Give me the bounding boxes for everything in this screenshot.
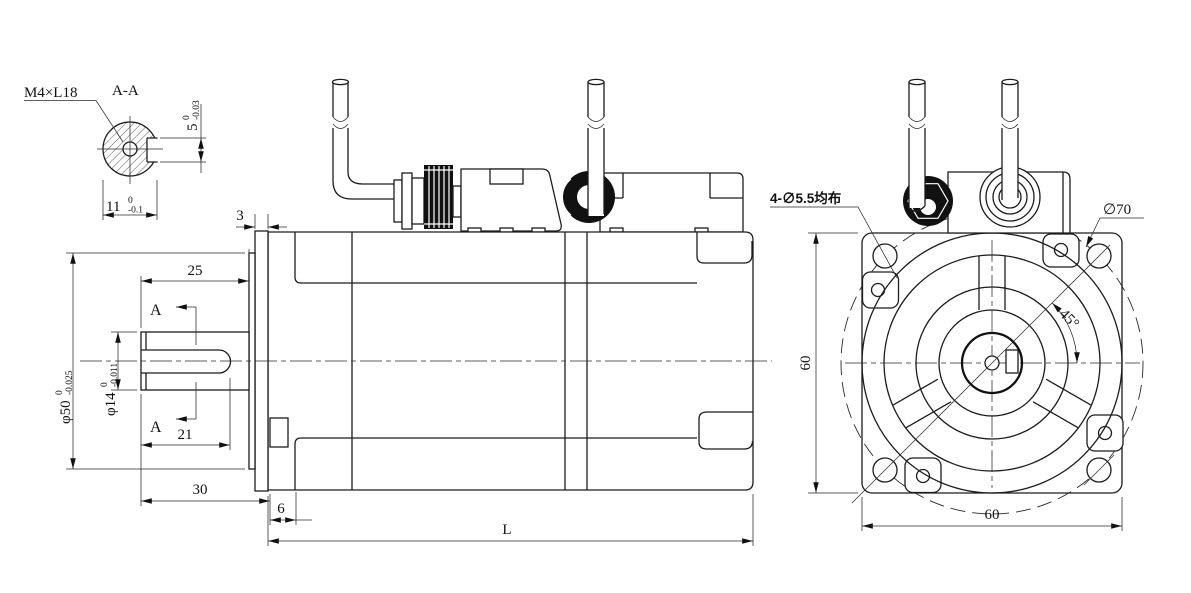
front-right-cable [1002, 79, 1018, 200]
svg-text:-0.1: -0.1 [128, 206, 143, 216]
side-view: 3 25 A A 21 30 6 [55, 79, 772, 546]
shaft-dia-dim: φ14 0 -0.011 [100, 363, 120, 416]
keyway-length-dim: 21 [178, 427, 193, 443]
thread-callout-label: M4×L18 [24, 85, 77, 101]
front-left-cable [909, 79, 925, 211]
front-view: 45° 4-∅ [770, 79, 1144, 531]
svg-text:0: 0 [182, 115, 192, 120]
section-detail-view: M4×L18 A-A 5 0 -0.03 11 0 -0.1 [24, 83, 206, 220]
motor-drawing: M4×L18 A-A 5 0 -0.03 11 0 -0.1 [0, 0, 1191, 593]
body-length-dim: L [502, 522, 511, 538]
svg-text:-0.025: -0.025 [65, 370, 75, 395]
shaft-length-dim: 25 [188, 263, 203, 279]
encoder-housing [600, 173, 743, 232]
svg-text:φ50: φ50 [58, 400, 74, 424]
front-cap-dim: 6 [277, 501, 285, 517]
shaft-total-dim: 30 [193, 482, 208, 498]
svg-text:-0.011: -0.011 [110, 363, 120, 387]
cable-break-mark [333, 117, 348, 129]
svg-text:11: 11 [106, 199, 120, 215]
svg-text:60: 60 [798, 356, 814, 371]
flange-height-dim: 60 [798, 356, 814, 371]
spigot-dia-dim: φ50 0 -0.025 [55, 370, 75, 424]
svg-text:0: 0 [100, 382, 110, 387]
power-connector [394, 165, 561, 232]
cable-break-mark [588, 117, 604, 129]
front-bottom-block [270, 418, 288, 447]
section-mark-bottom: A [150, 419, 162, 436]
power-cable [333, 79, 395, 199]
encoder-cable [588, 79, 604, 216]
svg-text:0: 0 [55, 390, 65, 395]
svg-text:-0.03: -0.03 [192, 100, 202, 120]
keyway-depth-dim: 5 0 -0.03 [182, 100, 202, 131]
drawing-canvas: M4×L18 A-A 5 0 -0.03 11 0 -0.1 [0, 0, 1191, 593]
spigot-thickness-dim: 3 [236, 208, 244, 224]
svg-text:5: 5 [185, 124, 201, 132]
section-mark-top: A [150, 302, 162, 319]
section-title: A-A [112, 83, 139, 99]
bolt-circle-label: ∅70 [1103, 202, 1131, 218]
svg-text:φ14: φ14 [103, 392, 119, 416]
keyway-front [1006, 350, 1018, 373]
svg-text:0: 0 [128, 196, 133, 206]
hole-callout-label: 4-∅5.5均布 [770, 190, 841, 206]
keyway-across-dim: 11 0 -0.1 [106, 196, 143, 216]
flange-width-dim: 60 [985, 507, 1000, 523]
